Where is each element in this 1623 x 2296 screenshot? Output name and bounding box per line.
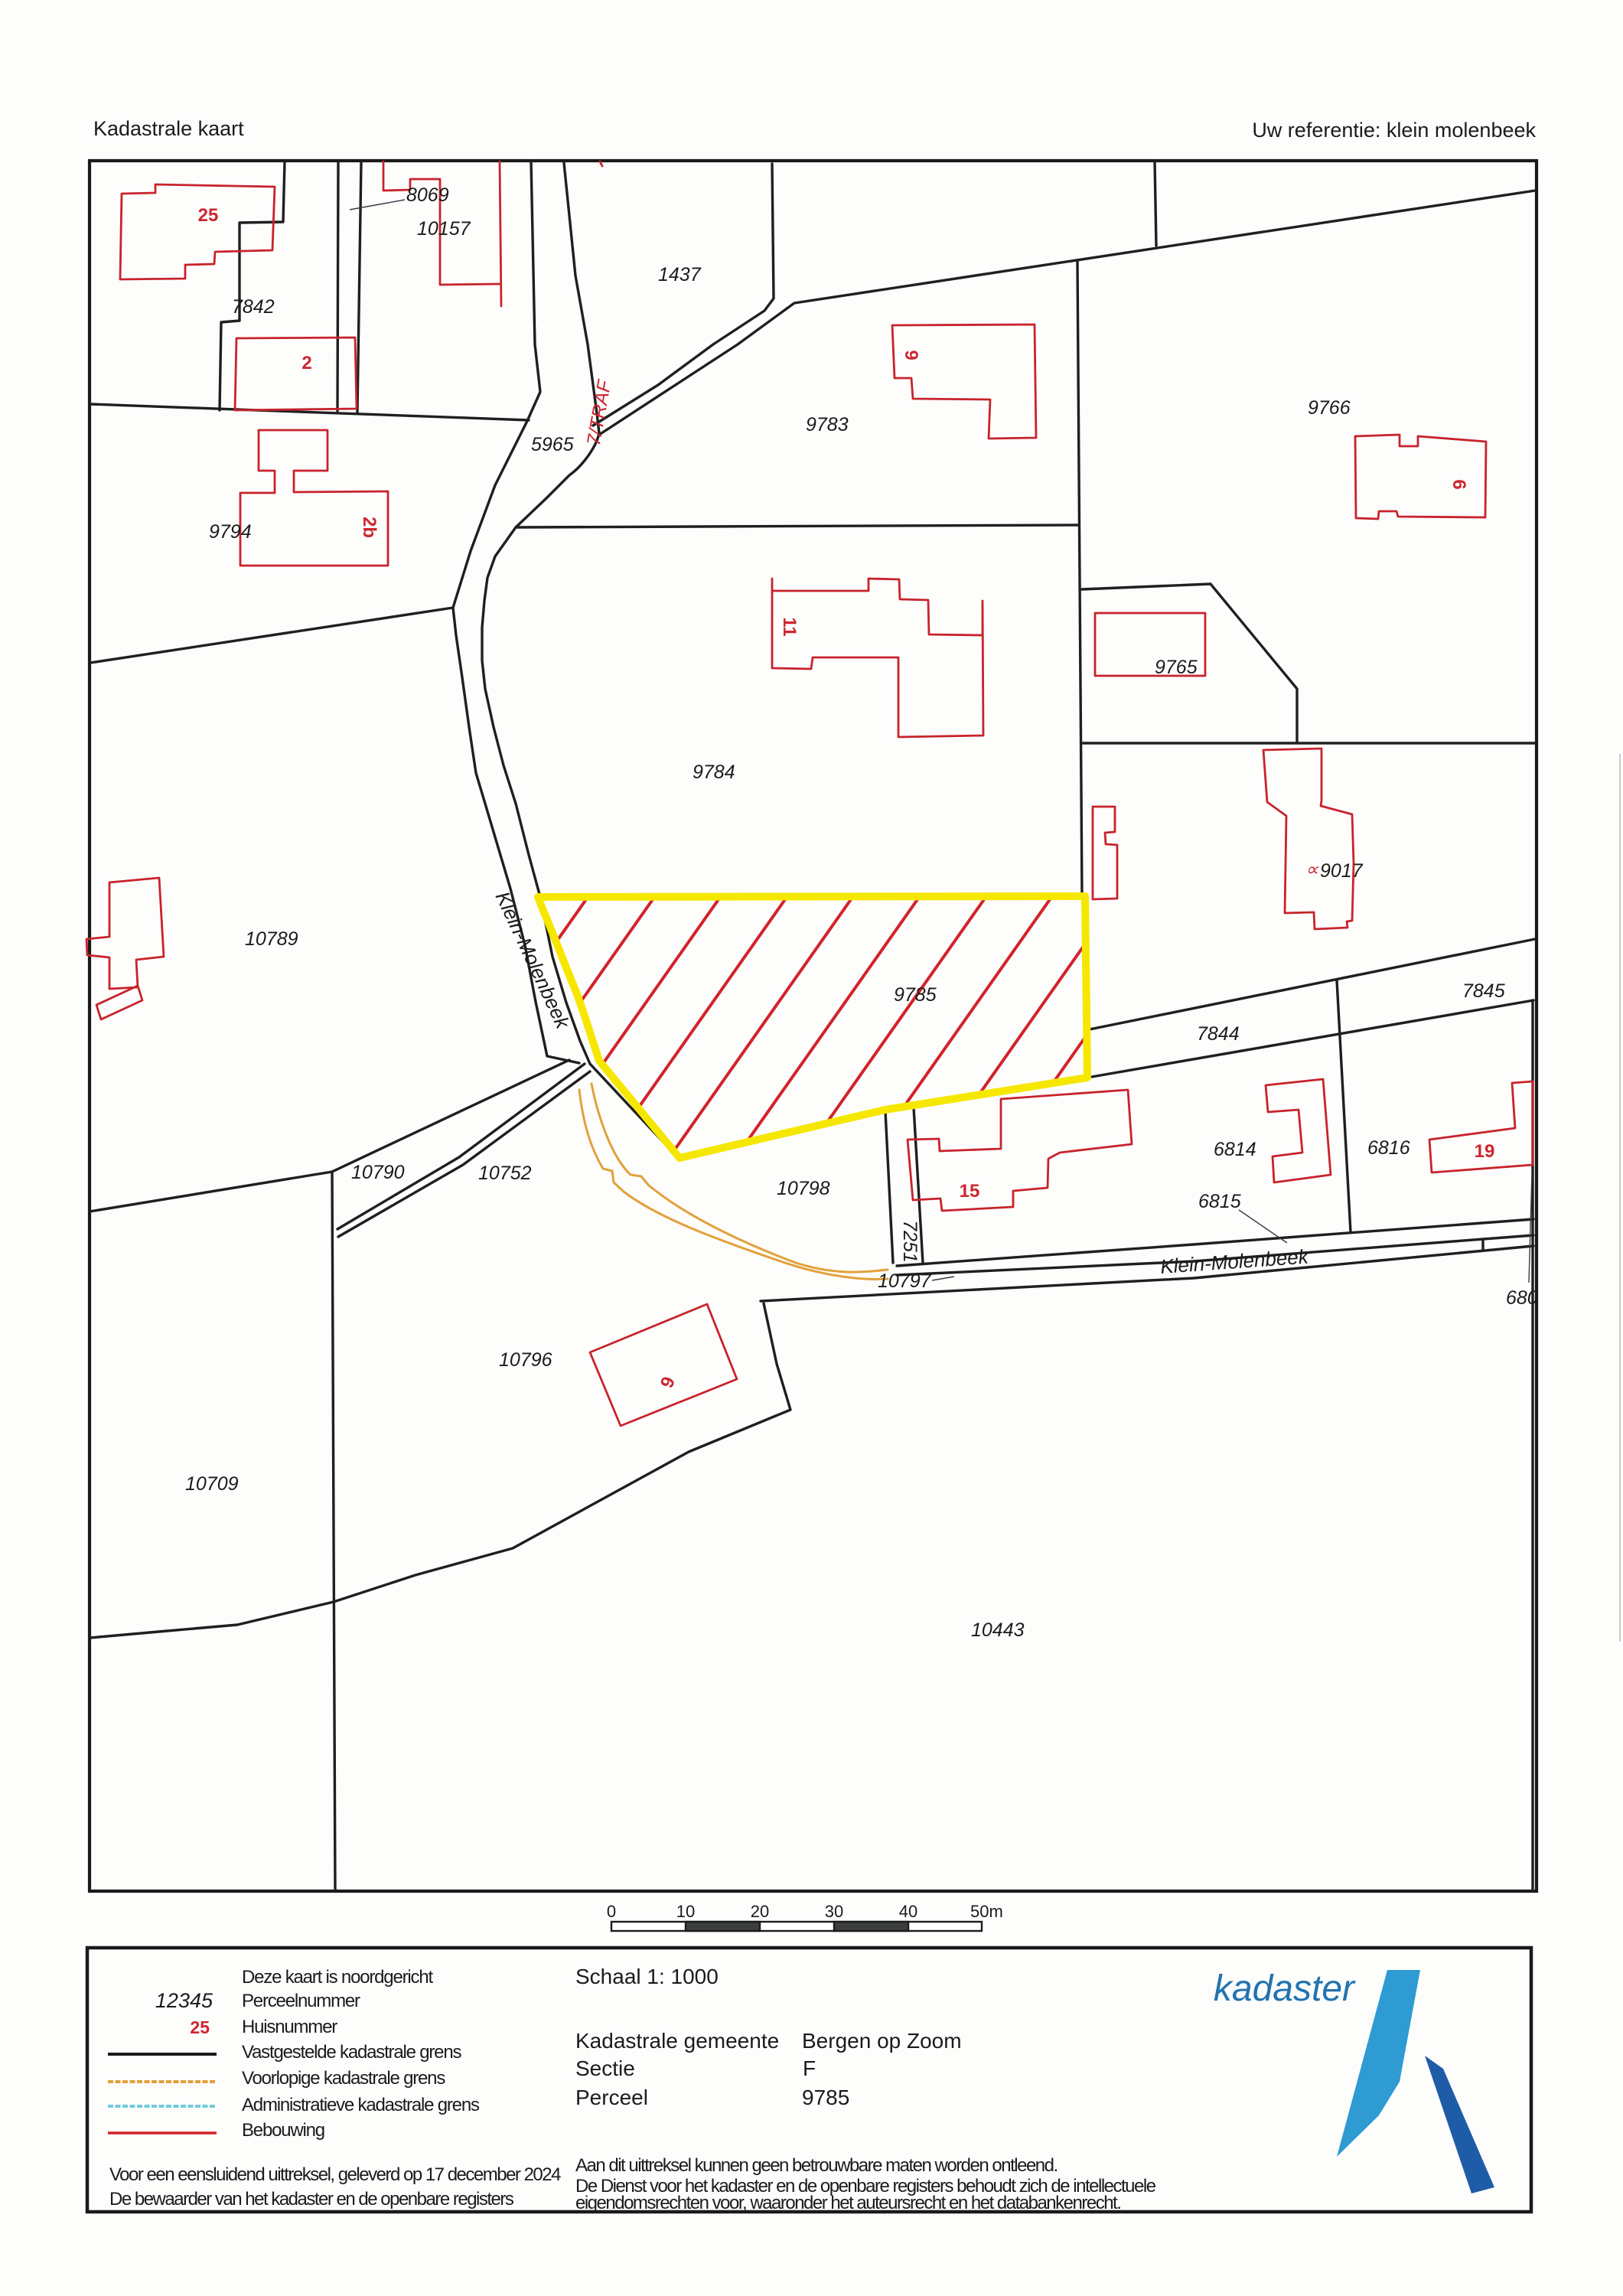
svg-text:5965: 5965 — [531, 434, 574, 455]
svg-text:De bewaarder van het kadaster: De bewaarder van het kadaster en de open… — [109, 2189, 514, 2210]
svg-text:Uw referentie: klein molenbeek: Uw referentie: klein molenbeek — [1252, 119, 1536, 142]
svg-text:19: 19 — [1475, 1141, 1495, 1162]
svg-text:Voorlopige kadastrale grens: Voorlopige kadastrale grens — [242, 2068, 445, 2089]
svg-text:7251: 7251 — [899, 1220, 921, 1263]
svg-text:15: 15 — [960, 1181, 980, 1202]
svg-text:10798: 10798 — [777, 1178, 830, 1199]
svg-text:7845: 7845 — [1462, 980, 1505, 1002]
svg-text:10789: 10789 — [245, 928, 298, 950]
svg-text:10796: 10796 — [499, 1349, 552, 1371]
svg-text:9784: 9784 — [693, 762, 735, 783]
svg-text:9017: 9017 — [1320, 860, 1364, 882]
svg-text:Aan dit uittreksel kunnen geen: Aan dit uittreksel kunnen geen betrouwba… — [575, 2155, 1058, 2176]
svg-text:9785: 9785 — [894, 984, 937, 1006]
svg-text:10: 10 — [676, 1902, 695, 1921]
svg-text:12345: 12345 — [155, 1989, 213, 2012]
svg-text:Huisnummer: Huisnummer — [242, 2017, 337, 2037]
svg-text:6: 6 — [1449, 479, 1469, 489]
svg-text:Bergen op Zoom: Bergen op Zoom — [802, 2029, 962, 2053]
svg-text:9: 9 — [901, 350, 921, 360]
svg-text:kadaster: kadaster — [1214, 1968, 1356, 2009]
svg-text:6816: 6816 — [1367, 1137, 1410, 1159]
svg-text:9794: 9794 — [209, 521, 252, 543]
svg-text:eigendomsrechten voor, waarond: eigendomsrechten voor, waaronder het aut… — [575, 2193, 1120, 2213]
svg-text:25: 25 — [190, 2017, 210, 2037]
svg-text:2: 2 — [301, 353, 311, 373]
svg-text:25: 25 — [198, 205, 219, 226]
svg-text:680: 680 — [1506, 1287, 1538, 1309]
svg-text:20: 20 — [751, 1902, 769, 1921]
svg-text:6815: 6815 — [1198, 1191, 1241, 1212]
svg-text:Kadastrale gemeente: Kadastrale gemeente — [575, 2029, 779, 2053]
svg-text:10709: 10709 — [185, 1473, 239, 1495]
svg-text:8069: 8069 — [406, 184, 449, 206]
svg-text:F: F — [803, 2056, 816, 2080]
svg-text:2b: 2b — [359, 517, 380, 538]
svg-text:10752: 10752 — [478, 1163, 532, 1184]
svg-text:11: 11 — [779, 617, 800, 636]
svg-text:Voor een eensluidend uittrekse: Voor een eensluidend uittreksel, gelever… — [109, 2164, 561, 2185]
svg-text:Sectie: Sectie — [575, 2056, 635, 2080]
svg-text:∝: ∝ — [1305, 859, 1319, 880]
svg-text:1437: 1437 — [658, 264, 702, 285]
svg-text:7844: 7844 — [1197, 1023, 1240, 1045]
svg-text:9785: 9785 — [802, 2086, 849, 2109]
svg-text:Kadastrale kaart: Kadastrale kaart — [93, 117, 244, 140]
svg-text:9765: 9765 — [1155, 657, 1198, 678]
svg-text:30: 30 — [825, 1902, 843, 1921]
svg-text:10443: 10443 — [971, 1619, 1025, 1641]
svg-text:10790: 10790 — [351, 1162, 405, 1183]
svg-text:Perceel: Perceel — [575, 2086, 648, 2109]
svg-text:Vastgestelde kadastrale grens: Vastgestelde kadastrale grens — [242, 2042, 461, 2063]
svg-text:9783: 9783 — [806, 414, 849, 435]
svg-text:0: 0 — [607, 1902, 616, 1921]
svg-text:10157: 10157 — [417, 218, 471, 240]
svg-text:Perceelnummer: Perceelnummer — [242, 1991, 360, 2011]
svg-text:Deze kaart is noordgericht: Deze kaart is noordgericht — [242, 1967, 433, 1988]
svg-text:6814: 6814 — [1214, 1139, 1256, 1160]
svg-text:7842: 7842 — [232, 296, 275, 318]
svg-text:10797: 10797 — [878, 1270, 932, 1292]
svg-text:50m: 50m — [970, 1902, 1003, 1921]
svg-text:40: 40 — [899, 1902, 917, 1921]
svg-text:Administratieve kadastrale gre: Administratieve kadastrale grens — [242, 2095, 480, 2115]
svg-text:Bebouwing: Bebouwing — [242, 2120, 324, 2141]
svg-text:Schaal 1: 1000: Schaal 1: 1000 — [575, 1965, 719, 1988]
svg-text:9766: 9766 — [1308, 397, 1351, 419]
